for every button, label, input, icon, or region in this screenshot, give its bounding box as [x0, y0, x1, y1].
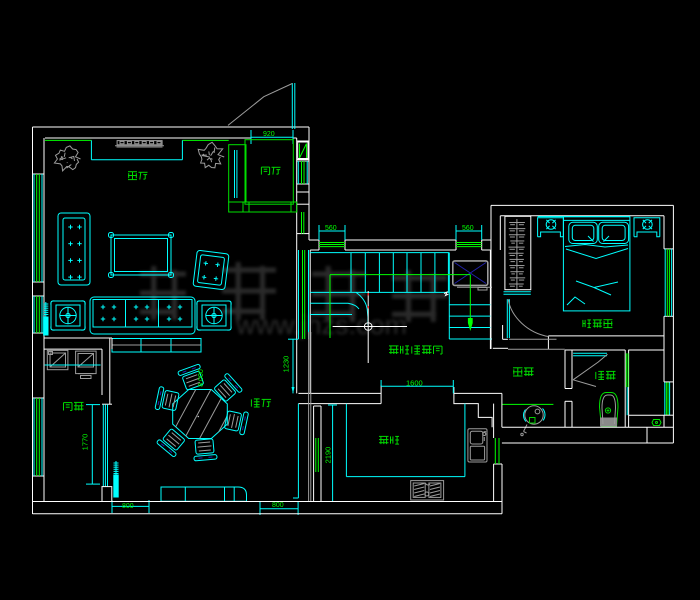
svg-text:560: 560: [462, 225, 474, 232]
svg-text:2190: 2190: [324, 447, 333, 464]
svg-text:1600: 1600: [406, 379, 423, 388]
svg-text:1770: 1770: [81, 434, 90, 451]
svg-text:1230: 1230: [282, 356, 291, 373]
svg-text:920: 920: [263, 131, 275, 138]
svg-text:560: 560: [325, 225, 337, 232]
svg-text:8.000: 8.000: [198, 369, 205, 387]
svg-text:800: 800: [122, 503, 134, 510]
svg-text:800: 800: [272, 502, 284, 509]
